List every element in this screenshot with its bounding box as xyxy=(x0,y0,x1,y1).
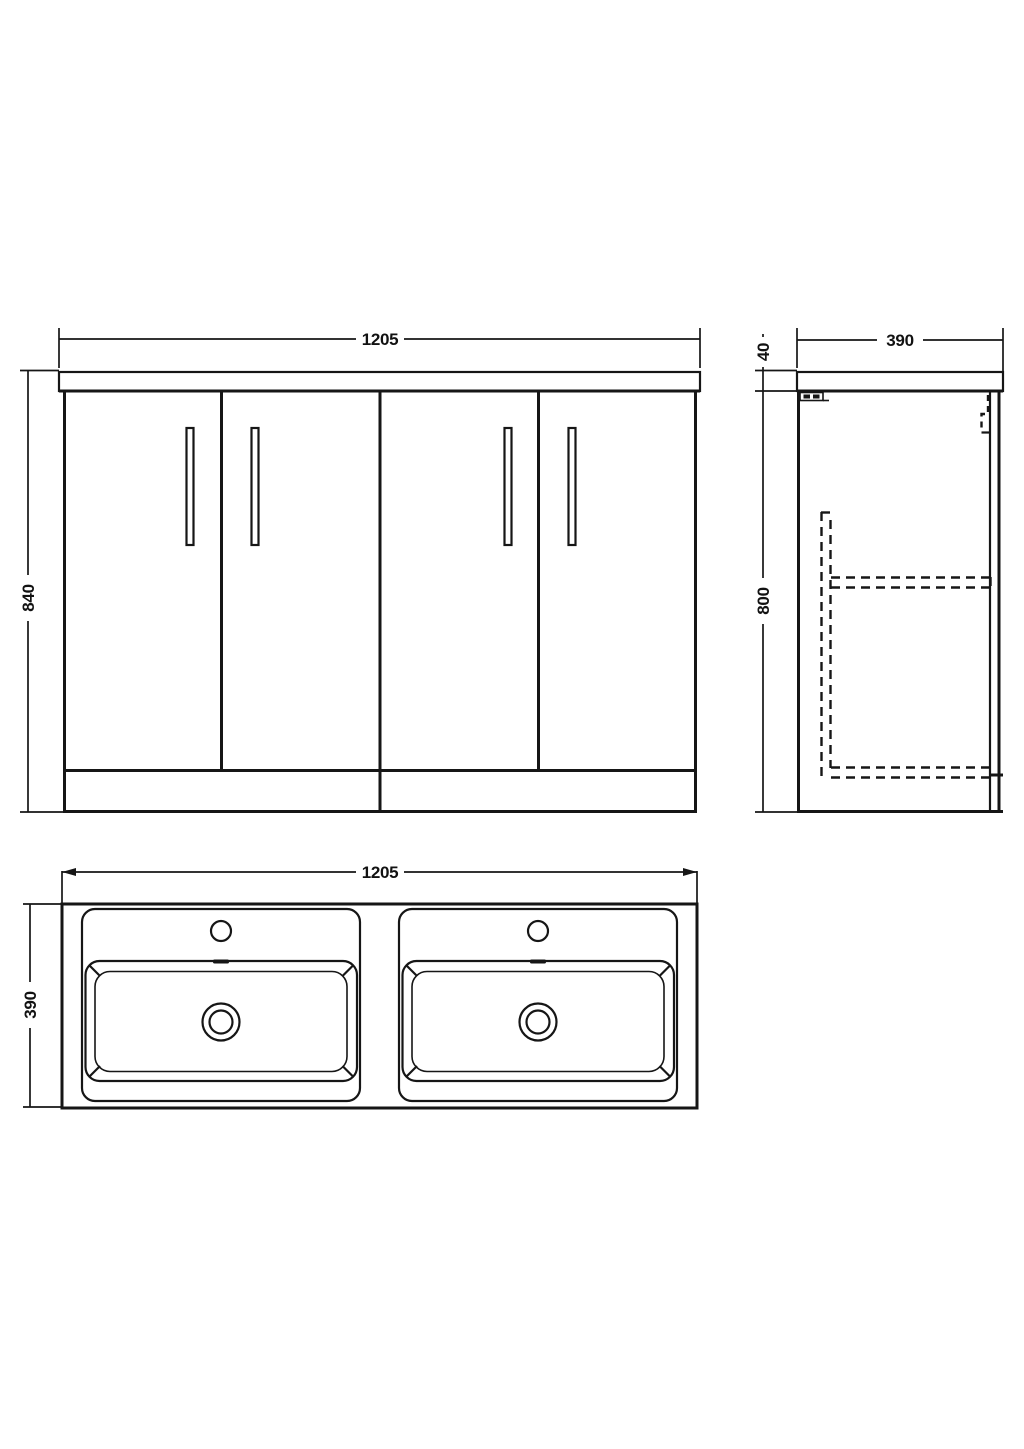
side-height-label: 800 xyxy=(754,587,773,614)
plan-depth-label: 390 xyxy=(21,991,40,1018)
front-width-label: 1205 xyxy=(362,330,399,349)
sheet-background xyxy=(0,0,1024,1449)
front-height-label-group: 840 xyxy=(19,575,38,621)
drawing-sheet: 1205 840 xyxy=(0,0,1024,1449)
door-handle-1 xyxy=(187,428,194,545)
plan-depth-label-group: 390 xyxy=(21,982,40,1028)
hinge-screw xyxy=(804,395,811,399)
door-handle-4 xyxy=(569,428,576,545)
overflow-slot xyxy=(530,960,546,964)
plan-width-label: 1205 xyxy=(362,863,399,882)
side-worktop-label: 40 xyxy=(754,343,773,361)
side-worktop-label-group: 40 xyxy=(754,337,773,367)
door-handle-3 xyxy=(505,428,512,545)
door-handle-2 xyxy=(252,428,259,545)
overflow-slot xyxy=(213,960,229,964)
side-height-label-group: 800 xyxy=(754,578,773,624)
vanity-technical-drawing: 1205 840 xyxy=(0,0,1024,1449)
front-height-label: 840 xyxy=(19,584,38,611)
side-depth-label: 390 xyxy=(886,331,913,350)
hinge-screw xyxy=(813,395,820,399)
